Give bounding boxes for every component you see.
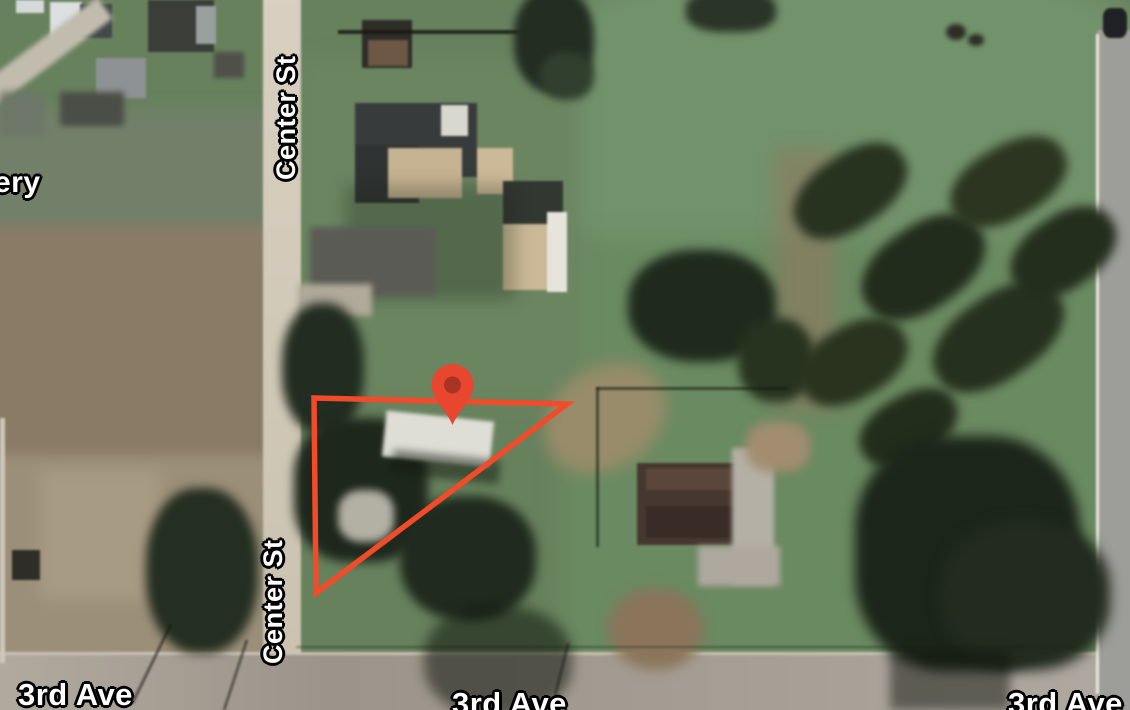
building-roof [214,52,244,78]
fence-line [596,387,788,390]
house-roof [646,506,734,538]
shed-roof [368,40,408,66]
fence-line [596,387,599,547]
map-pin-inner-dot [444,377,461,394]
dirt-patch [746,422,810,472]
structure [12,550,40,580]
curb-line [0,418,5,663]
fence-line [296,646,1076,648]
dirt-field [0,225,270,485]
tree-cluster [400,496,536,620]
street-label-center-st-top: Center St [271,55,302,180]
building-roof [196,6,216,44]
satellite-imagery [0,0,1130,710]
dirt-patch [608,588,704,670]
vehicle [16,0,44,13]
place-label-partial: ery [0,166,41,200]
dirt-patch [338,490,394,542]
driveway [698,546,780,586]
shrub [968,34,984,46]
tree-cluster [146,488,258,653]
tree-cluster [686,0,776,32]
satellite-map[interactable]: Center St Center St 3rd Ave 3rd Ave 3rd … [0,0,1130,710]
tree-cluster [540,52,594,100]
dirt-patch [40,470,160,600]
shrub [946,24,966,40]
street-label-3rd-ave-right: 3rd Ave [1008,686,1123,710]
street-label-3rd-ave-left: 3rd Ave [18,677,133,710]
street-label-3rd-ave-center: 3rd Ave [452,686,567,710]
tree-shadow [890,650,1010,710]
building-roof [60,92,124,126]
fence-line [338,30,520,34]
shrub [0,92,44,136]
tree-cluster [282,303,364,433]
house-roof [646,468,734,490]
house-roof [547,212,567,292]
shed-roof [441,105,468,136]
street-label-center-st-bottom: Center St [258,539,289,664]
vehicle [1103,8,1127,38]
